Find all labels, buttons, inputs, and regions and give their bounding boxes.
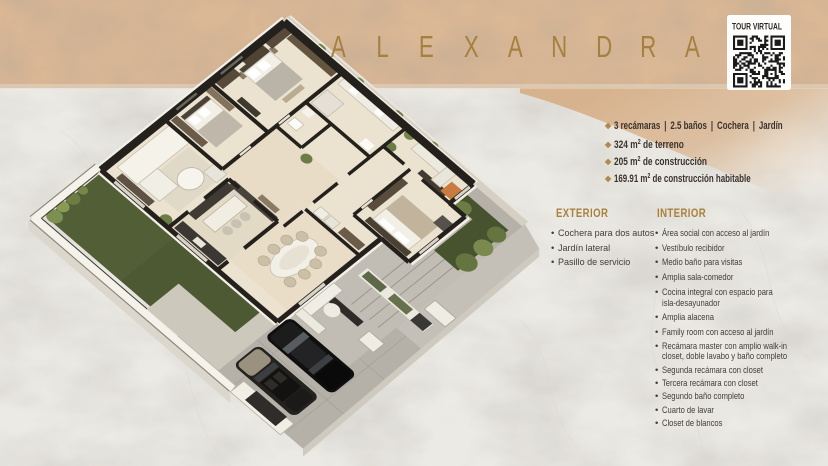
svg-text:TOUR VIRTUAL: TOUR VIRTUAL [732, 22, 782, 33]
